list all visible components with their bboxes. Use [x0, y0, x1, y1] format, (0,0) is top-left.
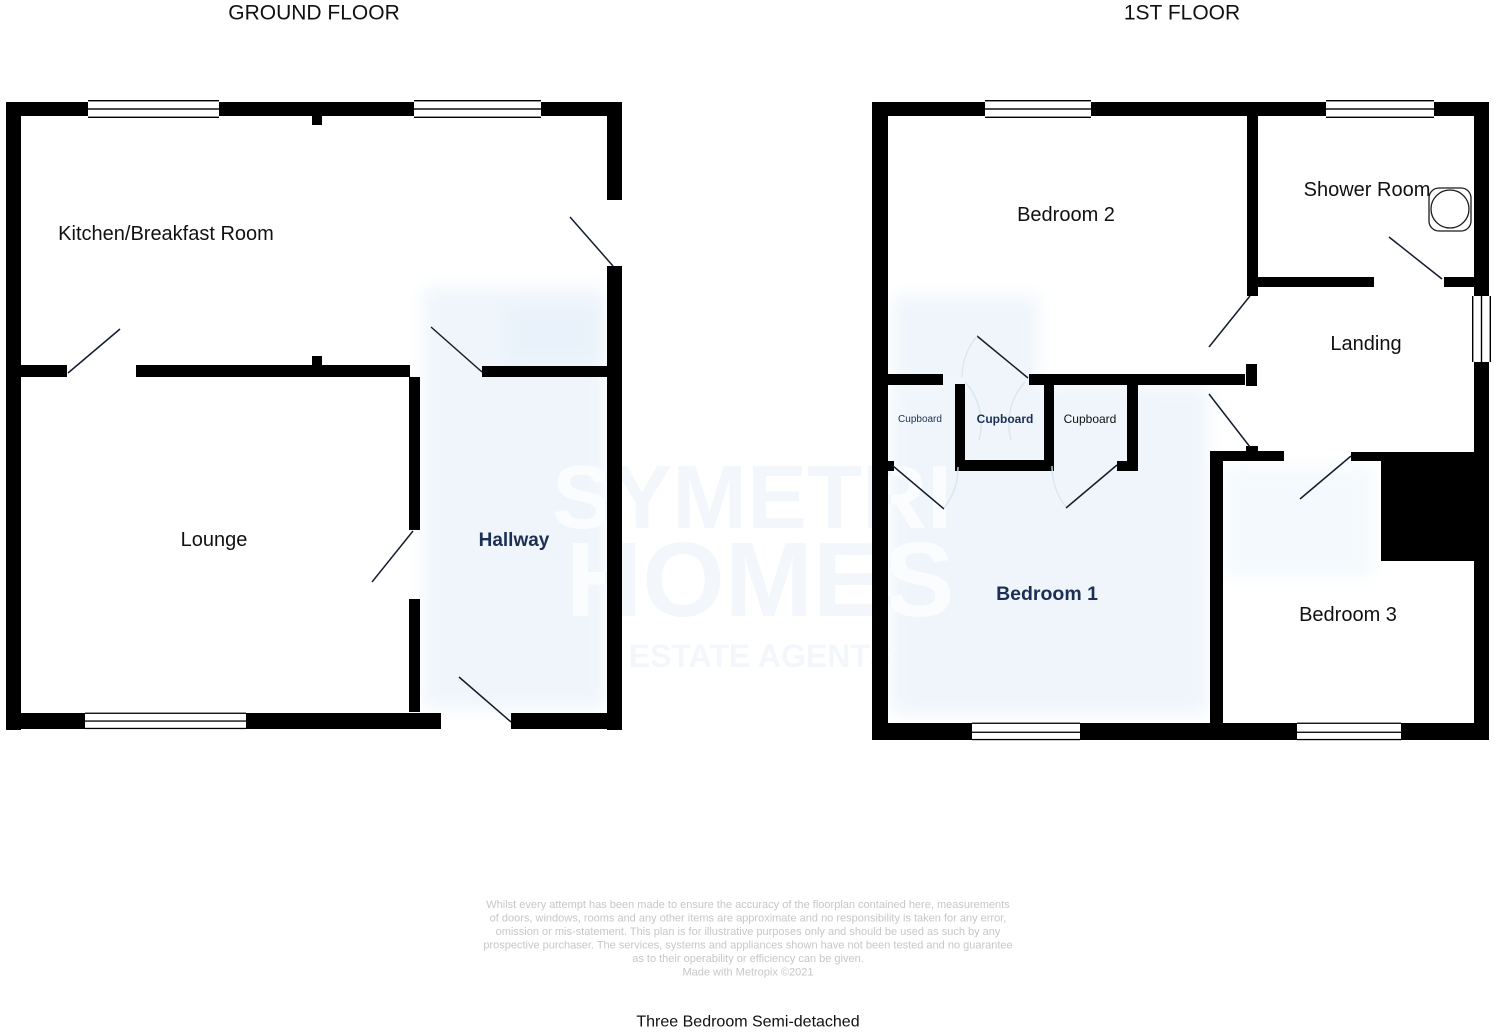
svg-text:prospective purchaser. The ser: prospective purchaser. The services, sys… [483, 940, 1012, 952]
svg-text:Bedroom 1: Bedroom 1 [996, 583, 1098, 605]
svg-text:omission or mis-statement. Thi: omission or mis-statement. This plan is … [496, 926, 1001, 938]
svg-text:Cupboard: Cupboard [1064, 412, 1117, 426]
svg-text:Landing: Landing [1330, 333, 1401, 355]
svg-text:Cupboard: Cupboard [977, 412, 1034, 426]
svg-text:1ST FLOOR: 1ST FLOOR [1124, 2, 1240, 25]
svg-text:Bedroom 2: Bedroom 2 [1017, 204, 1115, 226]
svg-text:Made with Metropix ©2021: Made with Metropix ©2021 [682, 967, 813, 979]
svg-text:Kitchen/Breakfast Room: Kitchen/Breakfast Room [58, 223, 274, 245]
svg-text:ESTATE AGENTS: ESTATE AGENTS [629, 638, 892, 674]
svg-text:Cupboard: Cupboard [898, 414, 942, 425]
svg-text:Hallway: Hallway [479, 530, 550, 551]
svg-text:of doors, windows, rooms and a: of doors, windows, rooms and any other i… [490, 913, 1007, 925]
svg-text:GROUND FLOOR: GROUND FLOOR [228, 2, 400, 25]
svg-text:Lounge: Lounge [181, 529, 248, 551]
svg-text:Shower Room: Shower Room [1304, 179, 1431, 201]
svg-text:as to their operability or eff: as to their operability or efficiency ca… [632, 953, 864, 965]
svg-text:Three Bedroom Semi-detached: Three Bedroom Semi-detached [636, 1014, 859, 1031]
svg-text:Bedroom 3: Bedroom 3 [1299, 604, 1397, 626]
svg-text:Whilst every attempt has been: Whilst every attempt has been made to en… [486, 899, 1010, 911]
